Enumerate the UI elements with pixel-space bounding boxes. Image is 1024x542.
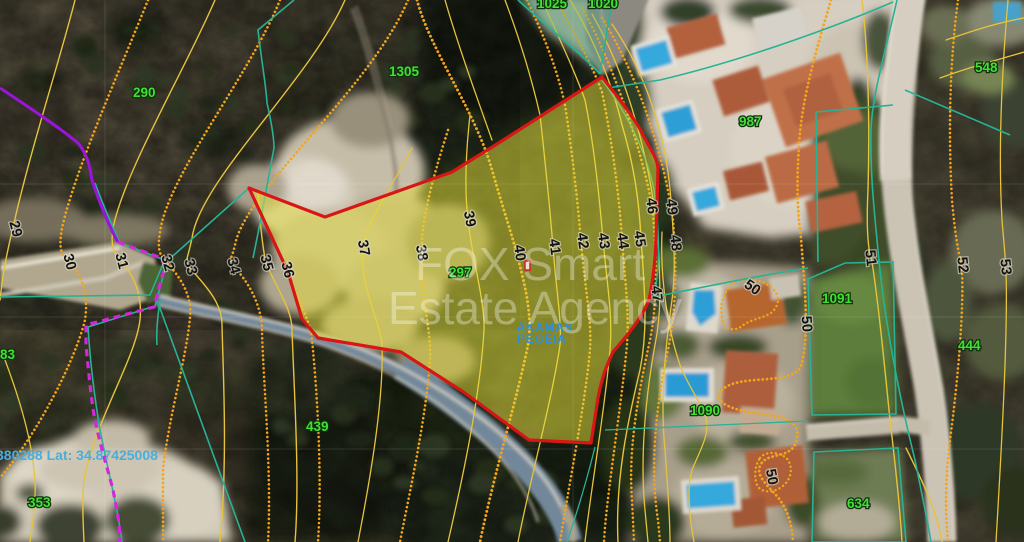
- svg-text:PEGEIA: PEGEIA: [517, 334, 566, 346]
- svg-text:53: 53: [996, 258, 1014, 276]
- svg-text:1091: 1091: [822, 291, 853, 306]
- svg-text:48: 48: [666, 234, 684, 252]
- svg-text:987: 987: [739, 114, 762, 129]
- svg-text:49: 49: [662, 198, 680, 216]
- svg-text:1020: 1020: [588, 0, 618, 11]
- svg-text:439: 439: [306, 419, 329, 434]
- svg-text:46: 46: [642, 197, 660, 215]
- svg-text:634: 634: [847, 496, 870, 511]
- svg-text:51: 51: [861, 249, 879, 267]
- svg-text:39: 39: [460, 210, 479, 229]
- svg-text:50: 50: [762, 468, 781, 487]
- svg-text:50: 50: [798, 315, 815, 332]
- svg-text:Estate Agency: Estate Agency: [388, 282, 682, 334]
- svg-text:290: 290: [133, 85, 156, 100]
- svg-text:37: 37: [354, 239, 373, 258]
- svg-text:1090: 1090: [690, 403, 720, 418]
- svg-text:380288 Lat: 34.87425008: 380288 Lat: 34.87425008: [0, 447, 158, 463]
- svg-text:83: 83: [0, 347, 16, 362]
- svg-text:353: 353: [28, 495, 51, 510]
- svg-text:444: 444: [958, 338, 981, 353]
- svg-text:548: 548: [975, 60, 998, 75]
- svg-text:1025: 1025: [537, 0, 568, 11]
- svg-text:1305: 1305: [389, 64, 420, 79]
- svg-text:52: 52: [953, 256, 971, 274]
